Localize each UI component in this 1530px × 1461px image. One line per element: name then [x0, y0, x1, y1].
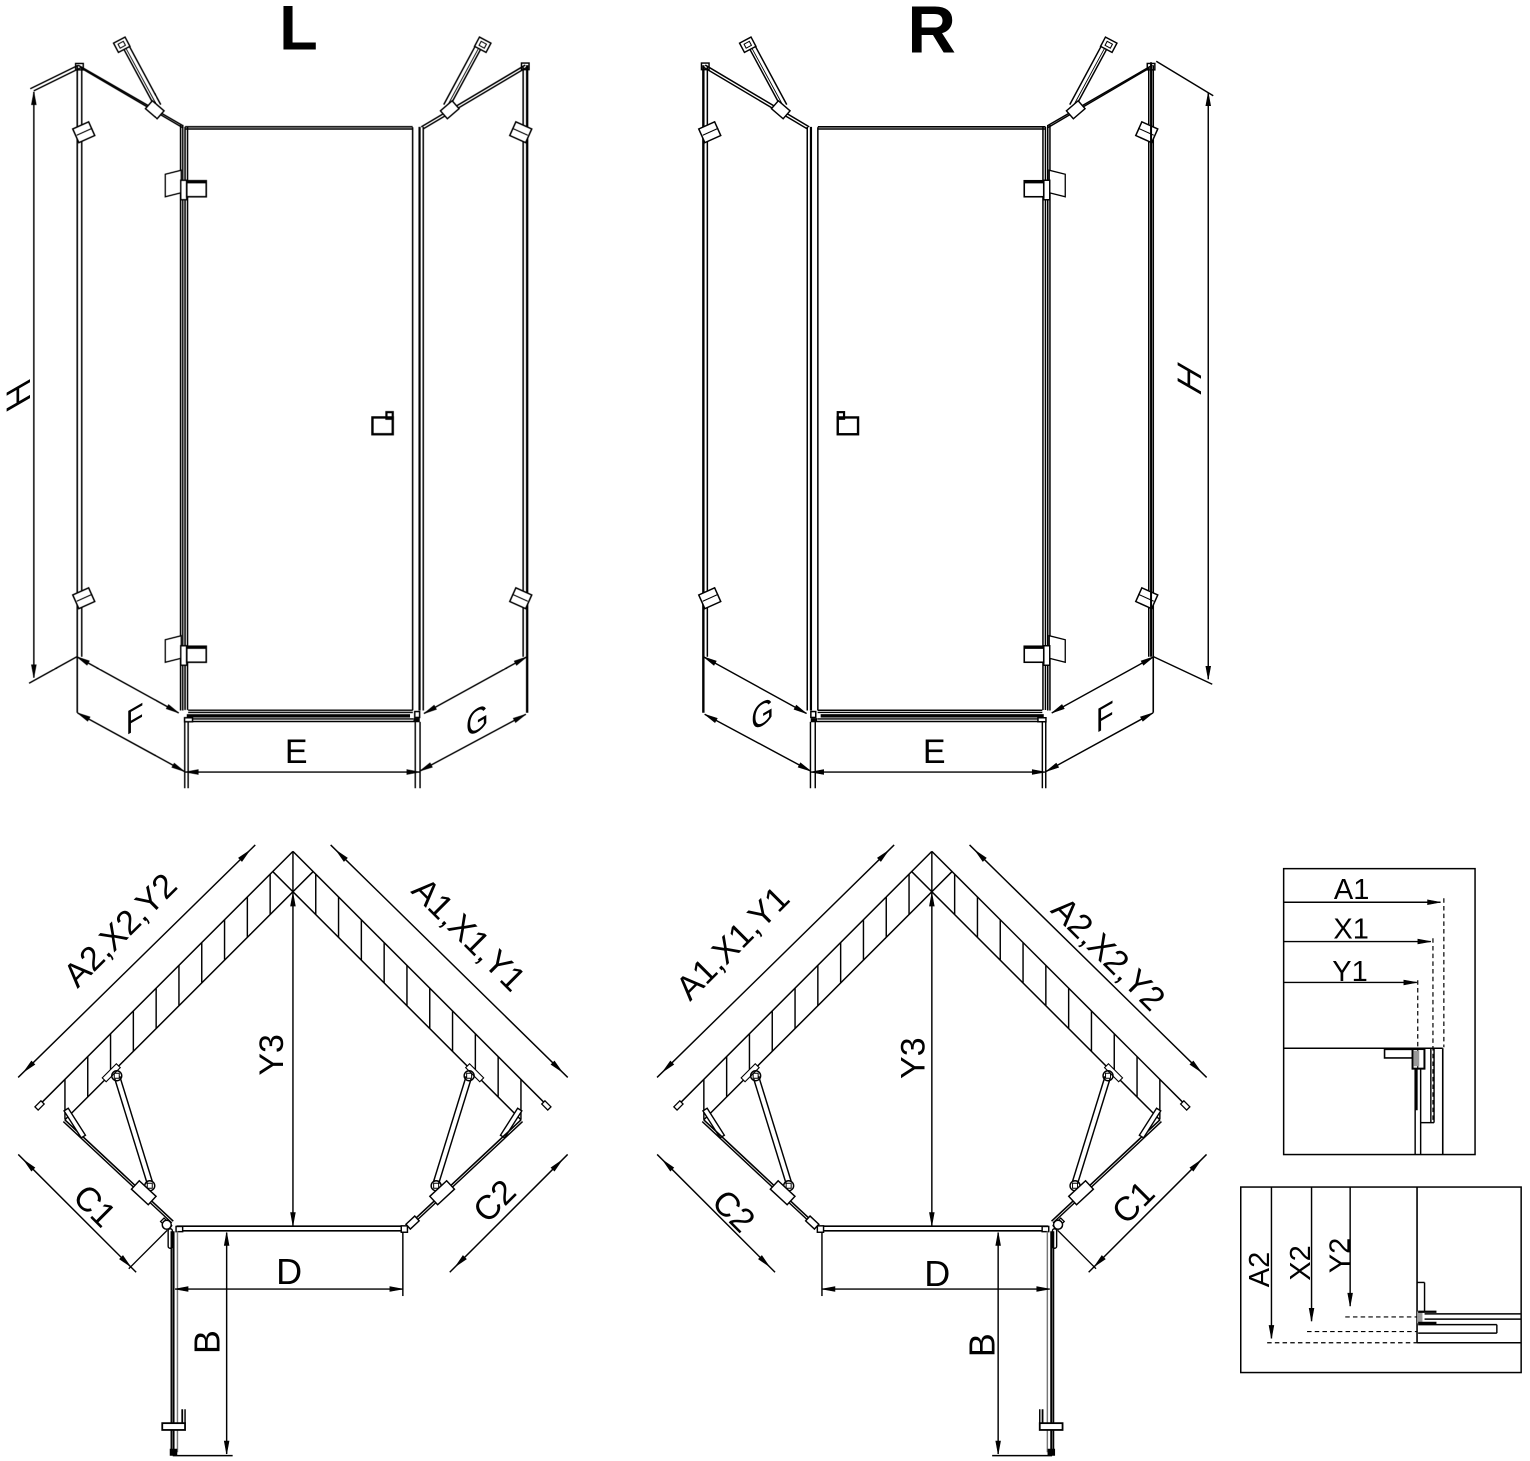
svg-text:A2: A2 [1244, 1252, 1276, 1287]
svg-text:Y3: Y3 [895, 1037, 933, 1079]
svg-text:X1: X1 [1333, 914, 1368, 946]
svg-text:Y2: Y2 [1324, 1238, 1356, 1273]
svg-text:D: D [276, 1251, 302, 1292]
svg-text:Y1: Y1 [1332, 956, 1367, 988]
svg-text:E: E [923, 733, 946, 771]
svg-text:A1: A1 [1334, 874, 1369, 906]
svg-text:E: E [285, 733, 308, 771]
svg-text:B: B [187, 1330, 228, 1354]
svg-text:L: L [279, 0, 317, 64]
svg-text:B: B [961, 1333, 1002, 1357]
svg-text:Y3: Y3 [253, 1034, 291, 1076]
svg-text:R: R [908, 0, 956, 67]
svg-text:X2: X2 [1285, 1245, 1317, 1280]
svg-text:D: D [924, 1253, 950, 1294]
